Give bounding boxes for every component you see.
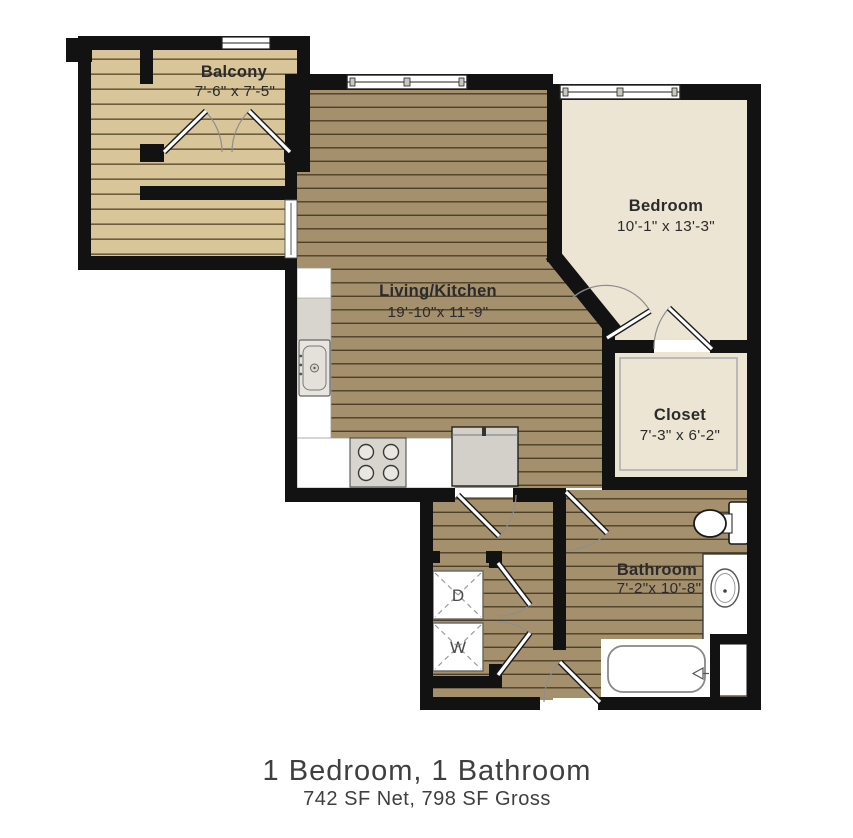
floors [90,50,747,700]
closet-name: Closet [654,406,706,424]
bathroom-dims: 7'-2"x 10'-8" [617,580,702,597]
wall [140,186,292,200]
caption-subtitle: 742 SF Net, 798 SF Gross [303,788,551,810]
balcony-dims: 7'-6" x 7'-5" [195,83,275,100]
closet-dims: 7'-3" x 6'-2" [640,427,720,444]
wall [285,258,297,502]
kitchen-sink [299,340,330,396]
bathroom-name: Bathroom [617,561,697,579]
caption-title: 1 Bedroom, 1 Bathroom [263,755,592,787]
caption: 1 Bedroom, 1 Bathroom 742 SF Net, 798 SF… [263,755,592,810]
wall [140,36,153,84]
wall [710,634,720,698]
wall [285,74,297,200]
washer-box: W [433,623,483,671]
dryer-label: D [452,586,464,605]
wall [547,84,562,262]
stove [350,438,406,487]
bedroom-name: Bedroom [629,197,704,215]
floor-plan-page: D W [0,0,853,838]
bathroom-vanity [703,554,748,644]
wall [513,488,565,502]
bedroom-dims: 10'-1" x 13'-3" [617,218,715,235]
deck-sliding-door [285,200,297,258]
living-window [347,75,467,89]
wall [140,144,164,162]
wall [297,36,310,172]
wall [420,697,540,710]
dryer-box: D [433,571,483,619]
kitchen-countertop-block [297,298,331,340]
floor-plan-drawing: D W [0,0,853,838]
wall [602,477,748,490]
wall [78,256,291,270]
living-name: Living/Kitchen [379,282,497,300]
bedroom-window [560,85,680,99]
washer-label: W [450,638,466,657]
living-dims: 19'-10"x 11'-9" [387,304,488,321]
wall [420,676,502,688]
wall [747,84,761,710]
wall [612,340,654,353]
wall [553,488,566,650]
wall [598,697,760,710]
balcony-window [222,37,270,49]
refrigerator [452,427,518,486]
bathtub [601,639,712,698]
wall [78,36,310,50]
wall [78,36,91,270]
wall [710,340,748,353]
balcony-name: Balcony [201,63,268,81]
wall [420,551,440,563]
